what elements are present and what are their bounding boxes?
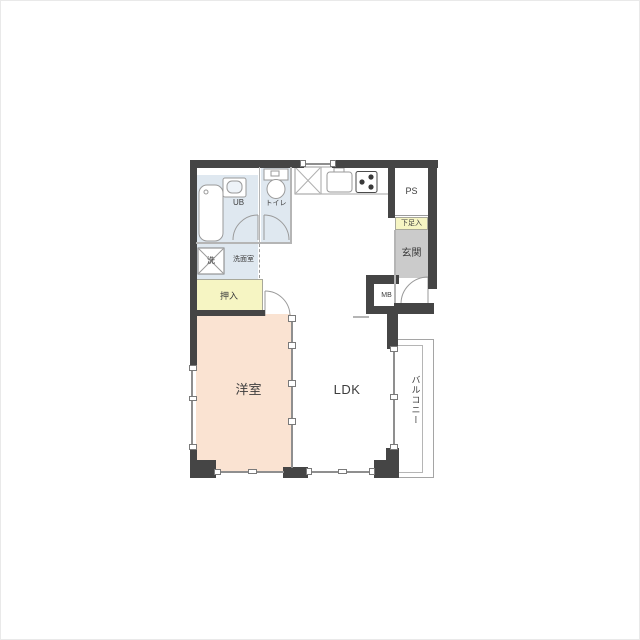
window-cap [369,468,375,475]
wall-bottom-middle [283,467,308,478]
wall-top-right [332,160,438,168]
wall-bottom-right-l2 [374,460,399,478]
wall-left [190,160,197,368]
wall-entrance-bottom [394,303,434,314]
window-cap [306,468,312,475]
window-cap [390,394,398,400]
window-cap [338,469,347,474]
kitchen-hall-line [353,316,369,318]
room-label-washroom: 洗面室 [229,253,258,265]
window-cap [300,160,306,167]
wall-bottom-left-l2 [190,460,216,478]
room-label-toilet: トイレ [261,197,291,209]
wall-closet-bottom [190,310,265,316]
window-cap [248,469,257,474]
window-cap [189,444,197,450]
wall-top-left [190,160,304,168]
room-label-shoe-cabinet: 下足入 [396,218,427,229]
western-room-door-arc [265,291,290,316]
wall-below-mb [387,314,398,349]
room-label-entrance: 玄関 [396,247,427,260]
room-label-western: 洋室 [226,382,271,397]
window-cap [214,469,221,475]
partition-cap [288,380,296,387]
wall-ps-left [388,160,395,218]
partition-cap [288,418,296,425]
window-left-western [191,369,193,446]
floor-plan-canvas: UB トイレ 洗面室 洗 押入 洋室 LDK 玄関 下足入 PS MB バルコニ… [0,0,640,640]
window-cap [330,160,336,167]
room-label-closet: 押入 [212,290,246,303]
partition-cap [288,342,296,349]
washroom-hall-boundary [259,244,260,278]
room-ldk [293,167,392,471]
room-label-washer: 洗 [205,255,217,267]
room-label-meter-box: MB [376,289,397,301]
entrance-door-arc [401,277,428,304]
window-cap [189,365,197,371]
room-label-balcony: バルコニー [408,356,422,444]
room-label-pipe-space: PS [399,185,424,198]
partition-cap [288,315,296,322]
window-cap [390,346,398,352]
wall-right [428,160,437,289]
room-label-ldk: LDK [329,382,365,397]
window-top-kitchen [304,163,332,165]
wall-ub-toilet [259,167,260,243]
window-cap [189,396,197,401]
window-cap [390,444,398,450]
wall-mb-bottom [366,306,399,314]
room-label-unit-bath: UB [226,197,251,209]
wall-ub-bottom [196,242,292,244]
room-unit-bath [196,175,258,244]
